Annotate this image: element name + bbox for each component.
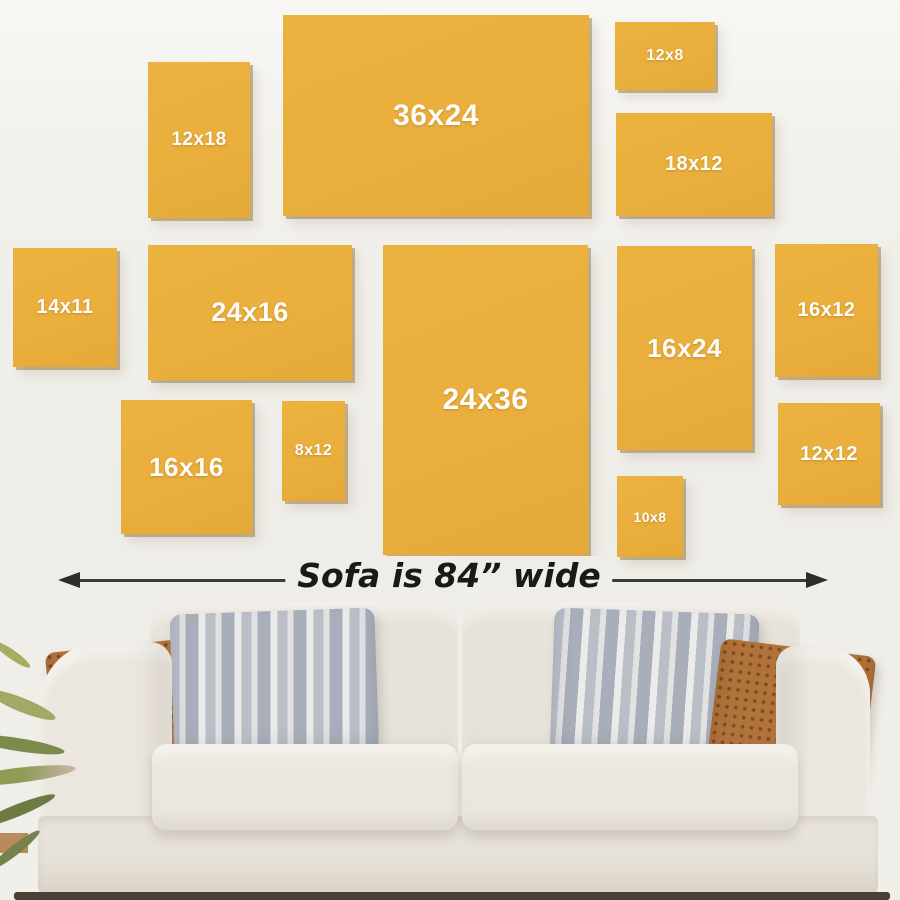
arrow-right-icon	[806, 572, 828, 588]
plant-leaf	[0, 790, 57, 833]
art-frame-16x24: 16x24	[617, 246, 752, 450]
art-frame-10x8: 10x8	[617, 476, 683, 557]
house-plant	[0, 620, 160, 900]
frame-size-label: 14x11	[36, 296, 93, 319]
plant-leaf	[0, 761, 76, 790]
frame-size-label: 12x18	[171, 129, 226, 151]
arrow-left-icon	[58, 572, 80, 588]
art-frame-24x36: 24x36	[383, 245, 588, 555]
art-frame-18x12: 18x12	[616, 113, 772, 216]
art-frame-8x12: 8x12	[282, 401, 345, 501]
frame-size-label: 10x8	[633, 509, 666, 525]
plant-leaf	[0, 731, 65, 759]
sofa-seat-cushion-right	[462, 744, 798, 830]
art-frame-14x11: 14x11	[13, 248, 117, 367]
frame-size-label: 12x8	[646, 47, 684, 65]
art-frame-36x24: 36x24	[283, 15, 589, 216]
frame-size-label: 16x12	[797, 299, 855, 322]
frame-size-label: 12x12	[800, 443, 858, 466]
art-frame-12x8: 12x8	[615, 22, 715, 90]
art-frame-12x18: 12x18	[148, 62, 250, 218]
frame-size-label: 8x12	[295, 442, 333, 460]
sofa-wall-art-size-guide: 12x18 36x24 12x8 18x12 14x11 24x16 24x36…	[0, 0, 900, 900]
plant-leaf	[0, 638, 33, 671]
art-frame-16x16: 16x16	[121, 400, 252, 534]
sofa-width-caption: Sofa is 84” wide	[285, 556, 612, 595]
plant-leaf	[0, 685, 58, 725]
art-frame-24x16: 24x16	[148, 245, 352, 380]
frame-size-label: 24x16	[211, 297, 289, 328]
throw-pillow-gray-left	[169, 607, 379, 766]
frame-size-label: 18x12	[665, 153, 723, 176]
art-frame-16x12: 16x12	[775, 244, 878, 377]
frame-size-label: 16x24	[647, 333, 722, 364]
sofa-seat-cushion-left	[152, 744, 458, 830]
art-frame-12x12: 12x12	[778, 403, 880, 505]
frame-size-label: 36x24	[393, 99, 479, 133]
frame-size-label: 24x36	[443, 383, 529, 417]
frame-size-label: 16x16	[149, 452, 224, 483]
plant-leaf	[0, 827, 43, 873]
